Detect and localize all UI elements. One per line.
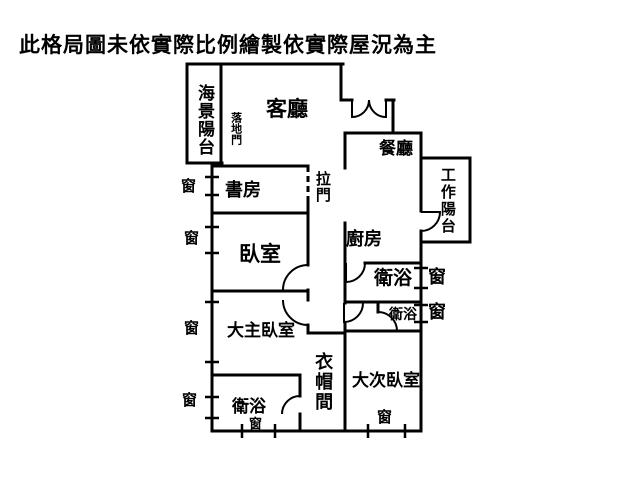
label-kitchen: 廚房 [346,230,382,249]
floorplan-page: 此格局圖未依實際比例繪製依實際屋況為主 [0,0,640,480]
label-window-master-bedroom: 窗 [184,321,199,337]
label-window-second-bedroom: 窗 [377,410,392,426]
entry-door-left-arc [352,100,369,117]
label-walk-in-closet: 衣帽間 [313,352,332,412]
label-bathroom-main: 衛浴 [374,269,412,289]
label-second-bedroom: 大次臥室 [352,372,420,390]
bathroom-main-door-arc [346,263,365,282]
label-bathroom-master: 衛浴 [232,398,266,416]
label-sliding-door: 拉門 [314,171,330,203]
label-living-room: 客廳 [266,99,308,121]
label-bedroom: 臥室 [239,244,281,266]
label-master-bedroom: 大主臥室 [227,322,295,340]
label-sea-view-balcony: 海景陽台 [195,84,213,156]
label-window-master-bath-left: 窗 [182,393,197,409]
label-window-bathroom-small: 窗 [428,303,446,322]
label-french-door: 落地門 [229,112,241,145]
door-swing-arcs [282,100,440,414]
label-window-study: 窗 [181,179,196,195]
entry-door-right-arc [369,100,386,117]
label-work-balcony: 工作陽台 [439,167,455,235]
label-window-master-bath-bottom: 窗 [249,417,262,431]
label-bathroom-small: 衛浴 [389,307,417,322]
label-window-bedroom: 窗 [184,231,199,247]
work-balcony-door-arc [421,212,440,231]
vestibule-door-arc [344,303,363,322]
label-study: 書房 [225,181,261,200]
label-window-bathroom-main: 窗 [428,268,446,287]
label-dining-room: 餐廳 [379,140,413,158]
bathroom-master-door-arc [282,396,300,414]
bedroom-door-arc [283,265,308,290]
